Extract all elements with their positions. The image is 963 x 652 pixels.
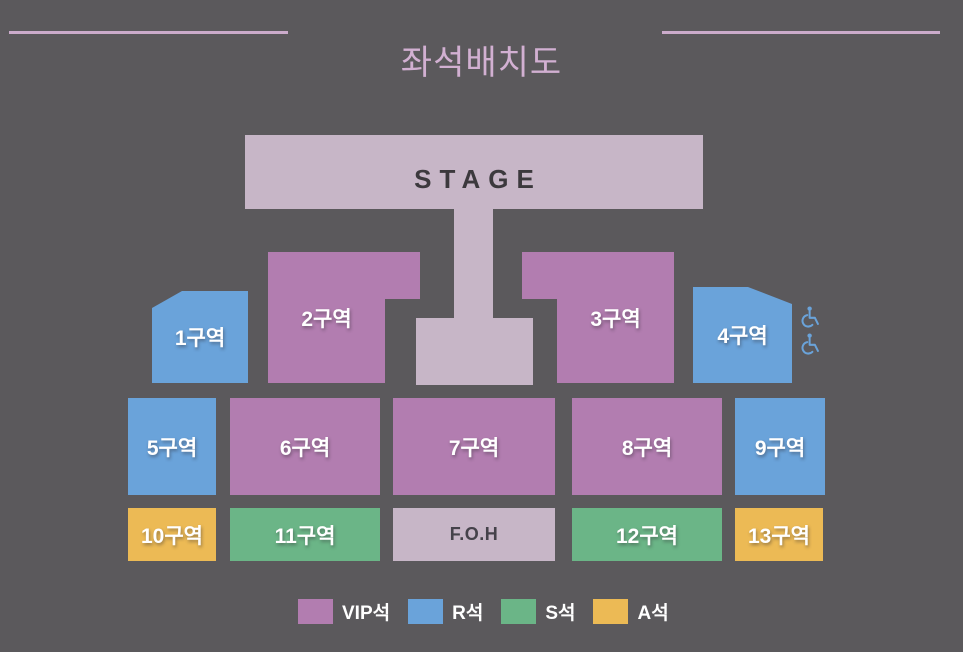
seating-chart: 좌석배치도 STAGE 1구역 2구역 3구역 4구역 5구역 6구역 7구역 <box>0 0 963 652</box>
section-13-label: 13구역 <box>748 520 810 550</box>
section-11[interactable]: 11구역 <box>230 508 380 561</box>
section-11-label: 11구역 <box>275 520 336 550</box>
section-2[interactable]: 2구역 <box>268 252 420 383</box>
section-2-label: 2구역 <box>301 303 351 333</box>
title-divider-right <box>662 31 940 34</box>
wheelchair-seating-area <box>800 305 821 355</box>
s-legend-label: S석 <box>545 598 575 625</box>
legend-item-a: A석 <box>593 598 668 625</box>
vip-legend-label: VIP석 <box>342 598 390 625</box>
foh-booth: F.O.H <box>393 508 555 561</box>
section-3-label: 3구역 <box>590 303 640 333</box>
section-5-label: 5구역 <box>147 432 197 462</box>
a-legend-label: A석 <box>637 598 668 625</box>
legend-item-vip: VIP석 <box>298 598 390 625</box>
legend-item-s: S석 <box>501 598 575 625</box>
section-7-label: 7구역 <box>449 432 499 462</box>
section-10-label: 10구역 <box>141 520 203 550</box>
s-color-swatch <box>501 599 536 624</box>
section-9-label: 9구역 <box>755 432 805 462</box>
section-8-label: 8구역 <box>622 432 672 462</box>
seat-grade-legend: VIP석 R석 S석 A석 <box>298 598 669 625</box>
section-12[interactable]: 12구역 <box>572 508 722 561</box>
section-13[interactable]: 13구역 <box>735 508 823 561</box>
section-10[interactable]: 10구역 <box>128 508 216 561</box>
section-7[interactable]: 7구역 <box>393 398 555 495</box>
section-8[interactable]: 8구역 <box>572 398 722 495</box>
section-1-label: 1구역 <box>175 322 225 352</box>
section-4[interactable]: 4구역 <box>693 287 792 383</box>
section-6-label: 6구역 <box>280 432 330 462</box>
section-3[interactable]: 3구역 <box>522 252 674 383</box>
title-divider-left <box>9 31 288 34</box>
stage-runway <box>416 209 533 385</box>
section-1[interactable]: 1구역 <box>152 291 248 383</box>
section-6[interactable]: 6구역 <box>230 398 380 495</box>
wheelchair-icon <box>800 305 821 328</box>
a-color-swatch <box>593 599 628 624</box>
r-color-swatch <box>408 599 443 624</box>
section-9[interactable]: 9구역 <box>735 398 825 495</box>
wheelchair-icon <box>800 332 821 355</box>
section-4-label: 4구역 <box>717 320 767 350</box>
section-5[interactable]: 5구역 <box>128 398 216 495</box>
stage: STAGE <box>245 135 703 209</box>
page-title: 좌석배치도 <box>0 35 963 84</box>
legend-item-r: R석 <box>408 598 483 625</box>
r-legend-label: R석 <box>452 598 483 625</box>
foh-label: F.O.H <box>450 524 499 545</box>
stage-label: STAGE <box>414 164 542 195</box>
vip-color-swatch <box>298 599 333 624</box>
section-12-label: 12구역 <box>616 520 678 550</box>
